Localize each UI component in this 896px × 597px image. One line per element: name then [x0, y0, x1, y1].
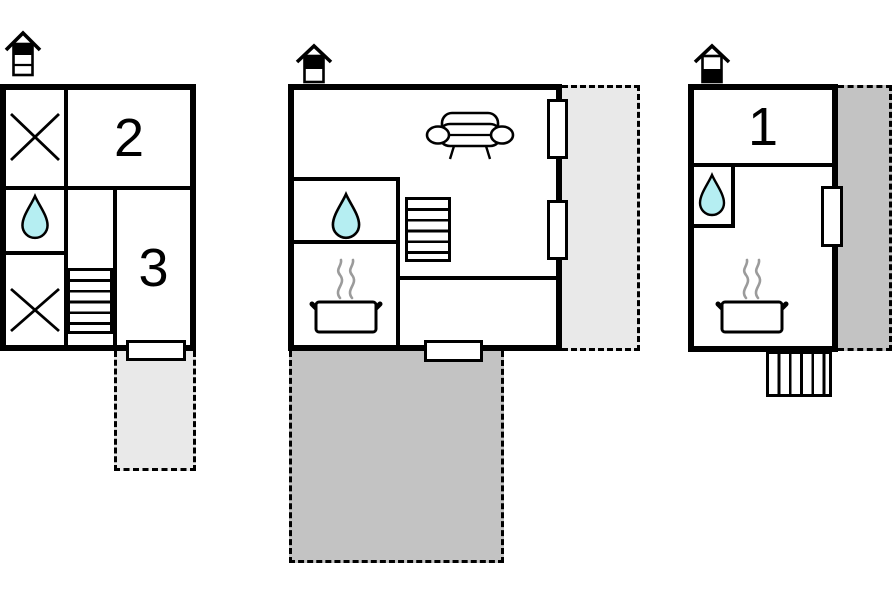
right-room-label-1: 1 [694, 90, 832, 163]
middle-wall-bath-top [294, 177, 400, 181]
left-window-cross-icon-bottom [8, 286, 62, 334]
left-water-drop-icon [19, 194, 51, 240]
left-room-label-2: 2 [68, 90, 190, 186]
left-room-label-3: 3 [117, 190, 190, 345]
middle-terrace [289, 351, 504, 563]
right-wall-horizontal-1 [694, 163, 832, 167]
right-water-drop-icon [697, 173, 727, 217]
left-window-cross-icon-top [8, 111, 62, 163]
middle-chimney-icon [295, 44, 333, 84]
middle-wall-horizontal-right [400, 276, 556, 280]
right-external-stairs-icon [766, 351, 832, 397]
floorplan-canvas: 2 3 [0, 0, 896, 597]
right-wall-bath-bottom [694, 224, 735, 228]
middle-door [424, 340, 483, 362]
middle-sofa-icon [426, 110, 514, 162]
middle-stove-pot-icon [310, 256, 382, 334]
middle-window-bottom [547, 200, 568, 260]
right-side-terrace [838, 85, 892, 351]
right-window [821, 186, 843, 247]
right-stove-pot-icon [716, 256, 788, 334]
left-door [126, 340, 186, 361]
middle-stairs-icon [405, 197, 451, 262]
left-wall-horizontal-2 [6, 251, 68, 255]
right-chimney-icon [693, 44, 731, 84]
right-wall-bath-right [731, 167, 735, 227]
left-stairs-icon [67, 268, 113, 334]
middle-wall-bath-bottom [294, 240, 400, 244]
left-chimney-icon [4, 30, 42, 78]
middle-side-terrace [562, 85, 640, 351]
middle-wall-vertical [396, 177, 400, 345]
left-terrace [114, 351, 196, 471]
middle-water-drop-icon [329, 192, 363, 240]
middle-window-top [547, 99, 568, 159]
